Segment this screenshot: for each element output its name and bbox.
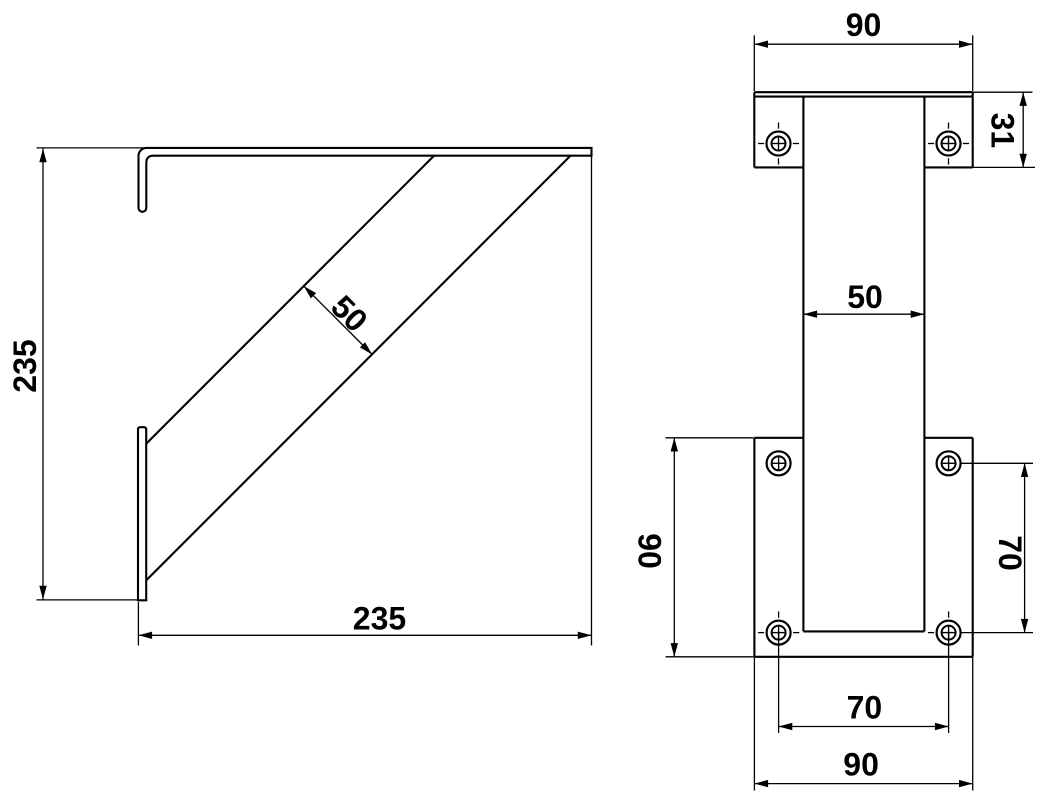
svg-text:90: 90 [843, 747, 879, 783]
svg-text:70: 70 [847, 689, 883, 725]
svg-text:235: 235 [7, 339, 43, 392]
svg-text:90: 90 [846, 7, 882, 43]
svg-text:50: 50 [324, 288, 375, 339]
svg-text:90: 90 [632, 533, 668, 569]
svg-text:50: 50 [847, 279, 883, 315]
svg-text:70: 70 [992, 535, 1028, 571]
svg-text:235: 235 [353, 601, 406, 637]
svg-text:31: 31 [984, 113, 1020, 149]
